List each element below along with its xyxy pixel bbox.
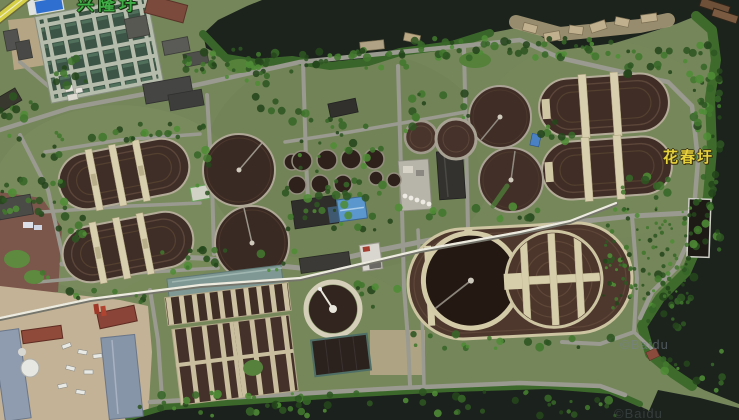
tree-canopy	[712, 171, 719, 178]
tree-canopy	[546, 125, 551, 130]
tree-canopy	[338, 118, 343, 123]
tree-canopy	[443, 52, 451, 60]
tree-canopy	[638, 239, 640, 241]
tree-canopy	[454, 410, 459, 415]
tree-canopy	[660, 281, 665, 286]
tree-canopy	[668, 291, 671, 294]
tree-canopy	[113, 129, 119, 135]
tree-canopy	[176, 135, 181, 140]
tree-canopy	[465, 404, 471, 410]
tree-canopy	[686, 71, 693, 78]
tree-canopy	[272, 98, 278, 104]
tree-canopy	[648, 238, 653, 243]
tree-canopy	[551, 400, 556, 405]
clarifier-tank	[306, 282, 360, 336]
tree-canopy	[524, 338, 532, 346]
tree-canopy	[523, 41, 530, 48]
tree-canopy	[702, 145, 708, 151]
tree-canopy	[296, 402, 302, 408]
tree-canopy	[466, 114, 470, 118]
tree-canopy	[343, 193, 351, 201]
clarifier-tank	[479, 148, 543, 212]
tree-canopy	[155, 130, 162, 137]
tree-canopy	[704, 41, 712, 49]
tree-canopy	[52, 145, 56, 149]
tree-canopy	[82, 232, 86, 236]
tree-canopy	[690, 273, 699, 282]
tree-canopy	[719, 349, 724, 354]
tree-canopy	[602, 294, 605, 297]
tree-canopy	[162, 401, 167, 406]
tree-canopy	[12, 105, 20, 113]
tree-canopy	[568, 132, 575, 139]
tree-canopy	[289, 69, 293, 73]
tree-canopy	[174, 126, 180, 132]
tree-canopy	[369, 213, 376, 220]
tree-canopy	[452, 330, 460, 338]
tree-canopy	[680, 301, 684, 305]
tree-canopy	[410, 331, 416, 337]
tree-canopy	[559, 410, 563, 414]
tree-canopy	[419, 399, 426, 406]
tree-canopy	[262, 80, 269, 87]
tree-canopy	[428, 333, 433, 338]
tree-canopy	[403, 398, 409, 404]
dirt-patch	[370, 330, 425, 375]
tree-canopy	[203, 154, 211, 162]
tree-canopy	[442, 38, 449, 45]
tree-canopy	[663, 188, 671, 196]
tree-canopy	[225, 75, 229, 79]
tree-canopy	[585, 46, 593, 54]
tree-canopy	[693, 199, 700, 206]
tree-canopy	[211, 247, 217, 253]
tree-canopy	[660, 366, 669, 375]
tree-canopy	[215, 49, 222, 56]
satellite-imagery[interactable]	[0, 0, 739, 420]
tree-canopy	[684, 234, 687, 237]
tree-canopy	[660, 274, 662, 276]
tree-canopy	[668, 70, 672, 74]
tree-canopy	[685, 243, 689, 247]
tree-canopy	[460, 103, 467, 110]
tree-canopy	[268, 107, 275, 114]
tree-canopy	[661, 223, 664, 226]
tree-canopy	[300, 139, 304, 143]
tree-canopy	[291, 392, 294, 395]
tree-canopy	[681, 321, 686, 326]
tree-canopy	[295, 108, 302, 115]
tree-canopy	[629, 294, 633, 298]
tree-canopy	[330, 142, 337, 149]
tree-canopy	[524, 215, 531, 222]
tree-canopy	[225, 62, 230, 67]
tree-canopy	[621, 277, 625, 281]
tree-canopy	[607, 281, 612, 286]
tree-canopy	[686, 256, 691, 261]
tree-canopy	[707, 204, 714, 211]
tree-canopy	[257, 105, 265, 113]
tree-canopy	[654, 195, 659, 200]
tree-canopy	[265, 58, 270, 63]
tree-canopy	[665, 247, 669, 251]
tree-canopy	[450, 45, 454, 49]
tree-canopy	[490, 42, 498, 50]
tree-canopy	[317, 155, 320, 158]
tree-canopy	[466, 54, 473, 61]
tree-canopy	[547, 403, 551, 407]
tree-canopy	[17, 136, 22, 141]
tree-canopy	[715, 229, 720, 234]
tree-canopy	[605, 240, 608, 243]
tree-canopy	[685, 263, 688, 266]
tree-canopy	[684, 361, 690, 367]
tree-canopy	[356, 286, 360, 290]
tree-canopy	[200, 48, 209, 57]
tree-canopy	[164, 130, 171, 137]
tree-canopy	[549, 134, 555, 140]
tree-canopy	[677, 294, 685, 302]
tree-canopy	[683, 47, 690, 54]
tree-canopy	[35, 208, 42, 215]
tree-canopy	[344, 182, 350, 188]
tree-canopy	[50, 181, 56, 187]
tree-canopy	[7, 134, 11, 138]
tree-canopy	[60, 138, 64, 142]
tree-canopy	[363, 124, 369, 130]
tree-canopy	[214, 263, 219, 268]
tree-canopy	[605, 51, 610, 56]
tree-canopy	[304, 63, 308, 67]
tree-canopy	[313, 209, 317, 213]
tree-canopy	[305, 55, 309, 59]
tree-canopy	[315, 170, 319, 174]
tree-canopy	[635, 213, 640, 218]
tree-canopy	[619, 264, 622, 267]
tree-canopy	[629, 284, 633, 288]
tree-canopy	[581, 45, 584, 48]
tree-canopy	[699, 375, 705, 381]
tree-canopy	[267, 269, 270, 272]
tree-canopy	[31, 103, 39, 111]
tree-canopy	[138, 122, 143, 127]
tree-canopy	[665, 177, 671, 183]
tree-canopy	[393, 285, 401, 293]
tree-canopy	[371, 305, 375, 309]
tree-canopy	[623, 264, 627, 268]
tree-canopy	[414, 343, 418, 347]
tree-canopy	[512, 397, 519, 404]
tree-canopy	[442, 346, 447, 351]
tree-canopy	[668, 262, 672, 266]
tree-canopy	[139, 300, 143, 304]
satellite-map-canvas[interactable]: 兴隆圩 花春圩 ©Baidu ©Baidu	[0, 0, 739, 420]
tree-canopy	[185, 255, 190, 260]
tree-canopy	[264, 73, 270, 79]
tree-canopy	[231, 48, 235, 52]
tree-canopy	[676, 367, 679, 370]
tree-canopy	[711, 135, 715, 139]
tree-canopy	[364, 66, 368, 70]
tree-canopy	[340, 201, 348, 209]
tree-canopy	[641, 284, 644, 287]
tree-canopy	[239, 47, 243, 51]
tree-canopy	[660, 310, 667, 317]
tree-canopy	[682, 211, 684, 213]
tree-canopy	[611, 306, 615, 310]
tree-canopy	[314, 202, 320, 208]
tree-canopy	[681, 283, 685, 287]
tree-canopy	[702, 220, 710, 228]
tree-canopy	[626, 216, 630, 220]
tree-canopy	[450, 41, 455, 46]
tree-canopy	[716, 233, 724, 241]
tree-canopy	[56, 151, 63, 158]
tree-canopy	[315, 48, 323, 56]
tree-canopy	[88, 134, 96, 142]
tree-canopy	[641, 268, 646, 273]
tree-canopy	[603, 259, 608, 264]
tree-canopy	[419, 388, 427, 396]
tree-canopy	[138, 405, 142, 409]
tree-canopy	[507, 50, 513, 56]
tree-canopy	[357, 192, 362, 197]
tree-canopy	[53, 78, 60, 85]
tree-canopy	[9, 92, 17, 100]
tree-canopy	[499, 215, 502, 218]
tree-canopy	[666, 271, 671, 276]
tree-canopy	[200, 124, 206, 130]
tree-canopy	[370, 147, 376, 153]
tree-canopy	[699, 154, 702, 157]
tree-canopy	[711, 363, 714, 366]
filtration-basin	[311, 334, 371, 377]
tree-canopy	[337, 54, 341, 58]
tree-canopy	[622, 208, 626, 212]
tree-canopy	[480, 409, 485, 414]
tree-canopy	[655, 208, 658, 211]
tree-canopy	[56, 225, 62, 231]
tree-canopy	[536, 412, 544, 420]
tree-canopy	[655, 47, 663, 55]
tree-canopy	[683, 216, 688, 221]
tree-canopy	[422, 101, 426, 105]
tree-canopy	[295, 395, 302, 402]
tree-canopy	[20, 114, 28, 122]
tree-canopy	[255, 81, 260, 86]
tree-canopy	[404, 129, 408, 133]
tree-canopy	[40, 270, 46, 276]
tree-canopy	[696, 42, 703, 49]
tree-canopy	[199, 246, 207, 254]
tree-canopy	[356, 179, 362, 185]
tree-canopy	[256, 52, 261, 57]
tree-canopy	[62, 81, 71, 90]
tree-canopy	[633, 267, 637, 271]
tree-canopy	[432, 36, 437, 41]
tree-canopy	[271, 52, 277, 58]
tree-canopy	[620, 294, 623, 297]
tree-canopy	[707, 72, 715, 80]
tree-canopy	[252, 93, 260, 101]
tree-canopy	[124, 137, 130, 143]
tree-canopy	[172, 406, 176, 410]
tree-canopy	[459, 39, 464, 44]
tree-canopy	[628, 62, 634, 68]
tree-canopy	[558, 53, 562, 57]
tree-canopy	[75, 221, 83, 229]
tree-canopy	[3, 210, 8, 215]
tree-canopy	[192, 391, 199, 398]
tree-canopy	[666, 286, 671, 291]
tree-canopy	[286, 227, 291, 232]
tree-canopy	[373, 228, 376, 231]
tree-canopy	[71, 72, 79, 80]
tree-canopy	[641, 176, 650, 185]
tree-canopy	[518, 216, 522, 220]
tree-canopy	[367, 400, 373, 406]
tree-canopy	[606, 223, 610, 227]
tree-canopy	[257, 250, 266, 259]
tree-canopy	[299, 166, 303, 170]
tree-canopy	[200, 67, 205, 72]
tree-canopy	[621, 186, 625, 190]
tree-canopy	[632, 49, 636, 53]
tree-canopy	[377, 191, 382, 196]
tree-canopy	[160, 250, 164, 254]
tree-canopy	[627, 252, 632, 257]
tree-canopy	[694, 111, 698, 115]
tree-canopy	[635, 288, 638, 291]
tree-canopy	[412, 113, 420, 121]
tree-canopy	[610, 229, 615, 234]
tree-canopy	[689, 240, 697, 248]
tree-canopy	[599, 402, 603, 406]
tree-canopy	[663, 361, 669, 367]
tree-canopy	[149, 134, 153, 138]
tree-canopy	[98, 133, 107, 142]
tree-canopy	[683, 59, 687, 63]
tree-canopy	[312, 61, 320, 69]
tree-canopy	[652, 304, 656, 308]
tree-canopy	[585, 405, 590, 410]
tree-canopy	[494, 347, 497, 350]
tree-canopy	[651, 245, 655, 249]
tree-canopy	[698, 51, 702, 55]
tree-canopy	[4, 183, 9, 188]
tree-canopy	[590, 42, 595, 47]
tree-canopy	[653, 182, 661, 190]
tree-canopy	[535, 208, 541, 214]
tree-canopy	[457, 48, 462, 53]
tree-canopy	[291, 248, 297, 254]
tree-canopy	[717, 115, 721, 119]
tree-canopy	[438, 209, 446, 217]
tree-canopy	[334, 179, 338, 183]
tree-canopy	[654, 61, 662, 69]
tree-canopy	[288, 406, 294, 412]
tree-canopy	[569, 400, 572, 403]
tree-canopy	[68, 228, 74, 234]
tree-canopy	[552, 119, 558, 125]
tree-canopy	[655, 246, 658, 249]
tree-canopy	[648, 272, 651, 275]
tree-canopy	[561, 51, 567, 57]
tree-canopy	[288, 214, 294, 220]
tree-canopy	[194, 151, 201, 158]
tree-canopy	[668, 223, 671, 226]
tree-canopy	[701, 64, 708, 71]
tree-canopy	[252, 396, 256, 400]
tree-canopy	[362, 194, 370, 202]
tree-canopy	[562, 40, 567, 45]
tree-canopy	[652, 289, 655, 292]
tree-canopy	[671, 317, 674, 320]
tree-canopy	[378, 181, 387, 190]
tree-canopy	[60, 198, 68, 206]
tree-canopy	[670, 239, 674, 243]
tree-canopy	[265, 403, 270, 408]
tree-canopy	[717, 68, 723, 74]
tree-canopy	[439, 91, 447, 99]
tree-canopy	[524, 390, 528, 394]
tree-canopy	[430, 207, 437, 214]
tree-canopy	[466, 345, 470, 349]
tree-canopy	[38, 177, 46, 185]
tree-canopy	[418, 47, 424, 53]
tree-canopy	[331, 225, 337, 231]
tree-canopy	[63, 206, 68, 211]
tree-canopy	[616, 54, 621, 59]
tree-canopy	[689, 206, 692, 209]
tree-canopy	[205, 191, 210, 196]
tree-canopy	[472, 204, 481, 213]
tree-canopy	[716, 140, 724, 148]
tree-canopy	[61, 212, 70, 221]
tree-canopy	[569, 335, 576, 342]
tree-canopy	[363, 154, 371, 162]
tree-canopy	[183, 66, 190, 73]
tree-canopy	[76, 296, 80, 300]
tree-canopy	[694, 226, 703, 235]
tree-canopy	[703, 132, 711, 140]
tree-canopy	[646, 226, 649, 229]
tree-canopy	[359, 292, 364, 297]
tree-canopy	[339, 121, 347, 129]
tree-canopy	[608, 40, 613, 45]
tree-canopy	[279, 407, 286, 414]
storage-tank	[21, 359, 39, 377]
tree-canopy	[695, 75, 704, 84]
tree-canopy	[255, 64, 261, 70]
tree-canopy	[302, 215, 307, 220]
tree-canopy	[32, 200, 36, 204]
tree-canopy	[26, 198, 32, 204]
tree-canopy	[245, 393, 252, 400]
tree-canopy	[53, 201, 56, 204]
tree-canopy	[359, 48, 365, 54]
tree-canopy	[574, 44, 578, 48]
tree-canopy	[66, 287, 75, 296]
tree-canopy	[281, 261, 286, 266]
tree-canopy	[673, 254, 677, 258]
tree-canopy	[485, 41, 490, 46]
tree-canopy	[75, 234, 78, 237]
tree-canopy	[714, 180, 719, 185]
tree-canopy	[183, 397, 190, 404]
tree-canopy	[687, 213, 691, 217]
tree-canopy	[541, 41, 547, 47]
